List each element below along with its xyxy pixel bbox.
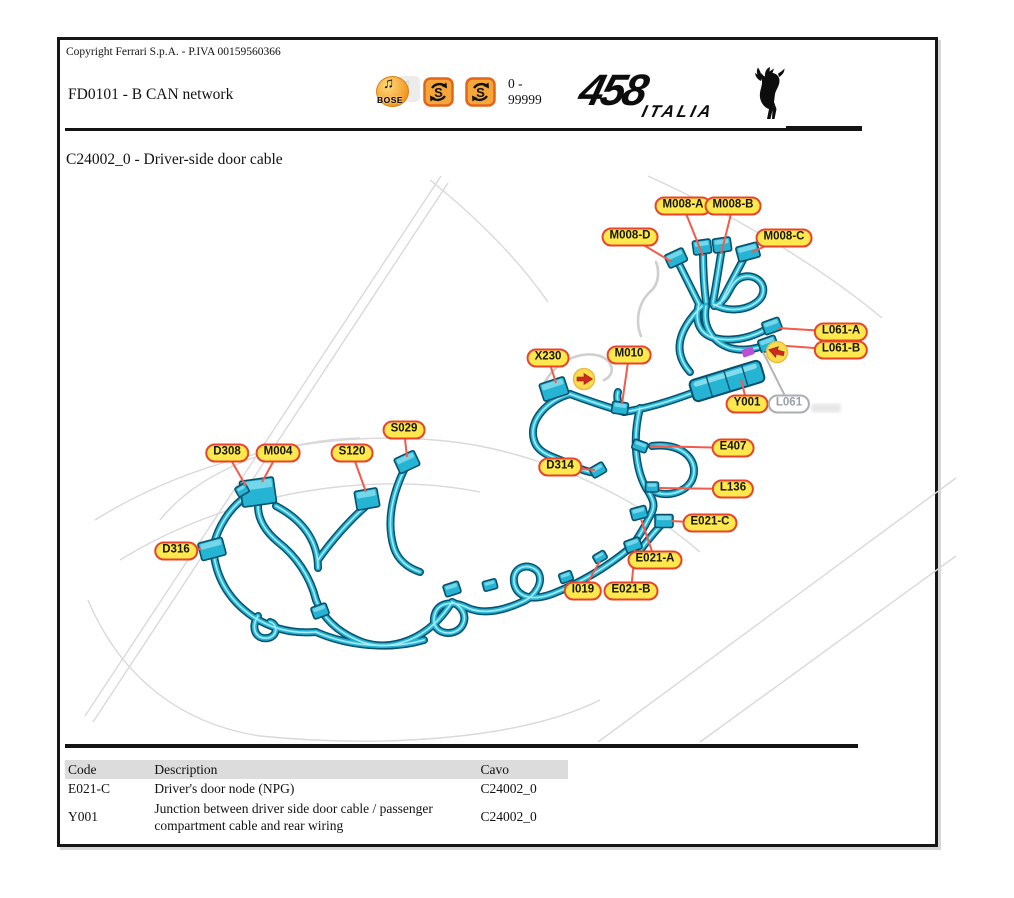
callout-X230[interactable]: X230 (527, 349, 570, 368)
cell-cavo-Y001: C24002_0 (478, 799, 568, 836)
table-row-Y001: Y001Junction between driver side door ca… (65, 799, 568, 836)
serial-range: 0 - 99999 (508, 76, 542, 108)
callout-M010[interactable]: M010 (607, 346, 652, 365)
table-header-description: Description (151, 760, 477, 779)
parts-table-header: CodeDescriptionCavo (65, 760, 568, 779)
svg-text:S: S (476, 85, 485, 100)
callout-M008-B[interactable]: M008-B (705, 197, 762, 216)
callout-D314[interactable]: D314 (538, 458, 582, 477)
document-title: FD0101 - B CAN network (68, 86, 233, 104)
cell-code-E021-C: E021-C (65, 779, 151, 798)
callout-M004[interactable]: M004 (256, 444, 301, 463)
logo-variant-italia: ITALIA (640, 102, 717, 122)
cell-description-Y001: Junction between driver side door cable … (151, 799, 477, 836)
bose-audio-icon: ♫ ♫ BOSE (376, 76, 422, 110)
parts-table-body: E021-CDriver's door node (NPG)C24002_0Y0… (65, 779, 568, 835)
callout-M008-A[interactable]: M008-A (655, 197, 712, 216)
prancing-horse-icon (748, 64, 788, 122)
svg-text:S: S (434, 85, 443, 100)
callout-M008-C[interactable]: M008-C (756, 229, 813, 248)
callout-L061-A[interactable]: L061-A (814, 323, 868, 342)
callout-I019[interactable]: I019 (564, 582, 602, 601)
header-divider-accent (786, 126, 862, 131)
callout-E407[interactable]: E407 (712, 439, 755, 458)
copyright-text: Copyright Ferrari S.p.A. - P.IVA 0015956… (66, 46, 281, 58)
table-header-cavo: Cavo (478, 760, 568, 779)
callout-E021-C[interactable]: E021-C (683, 514, 738, 533)
callout-L061: L061 (768, 395, 810, 414)
cell-code-Y001: Y001 (65, 799, 151, 836)
callout-E021-A[interactable]: E021-A (628, 551, 683, 570)
callout-D316[interactable]: D316 (154, 542, 198, 561)
table-header-code: Code (65, 760, 151, 779)
table-divider (65, 744, 858, 748)
callout-S120[interactable]: S120 (331, 444, 374, 463)
section-title: C24002_0 - Driver-side door cable (66, 151, 283, 169)
callout-D308[interactable]: D308 (205, 444, 249, 463)
callout-S029[interactable]: S029 (383, 421, 426, 440)
manual-page: Copyright Ferrari S.p.A. - P.IVA 0015956… (0, 0, 1014, 898)
callout-L136[interactable]: L136 (712, 480, 754, 499)
header-divider (65, 128, 860, 131)
cell-cavo-E021-C: C24002_0 (478, 779, 568, 798)
ferrari-458-italia-logo: 458 ITALIA (580, 70, 810, 126)
bose-label: BOSE (377, 95, 403, 105)
logo-model-458: 458 (574, 66, 651, 116)
callout-E021-B[interactable]: E021-B (604, 582, 659, 601)
callout-M008-D[interactable]: M008-D (602, 228, 659, 247)
sync-s-icon: S (465, 77, 496, 107)
callout-L061-B[interactable]: L061-B (814, 341, 868, 360)
table-row-E021-C: E021-CDriver's door node (NPG)C24002_0 (65, 779, 568, 798)
callout-Y001[interactable]: Y001 (726, 395, 769, 414)
sync-s-icon: S (423, 77, 454, 107)
parts-table: CodeDescriptionCavo E021-CDriver's door … (65, 760, 568, 835)
music-note-icon: ♫ (383, 76, 394, 93)
cell-description-E021-C: Driver's door node (NPG) (151, 779, 477, 798)
